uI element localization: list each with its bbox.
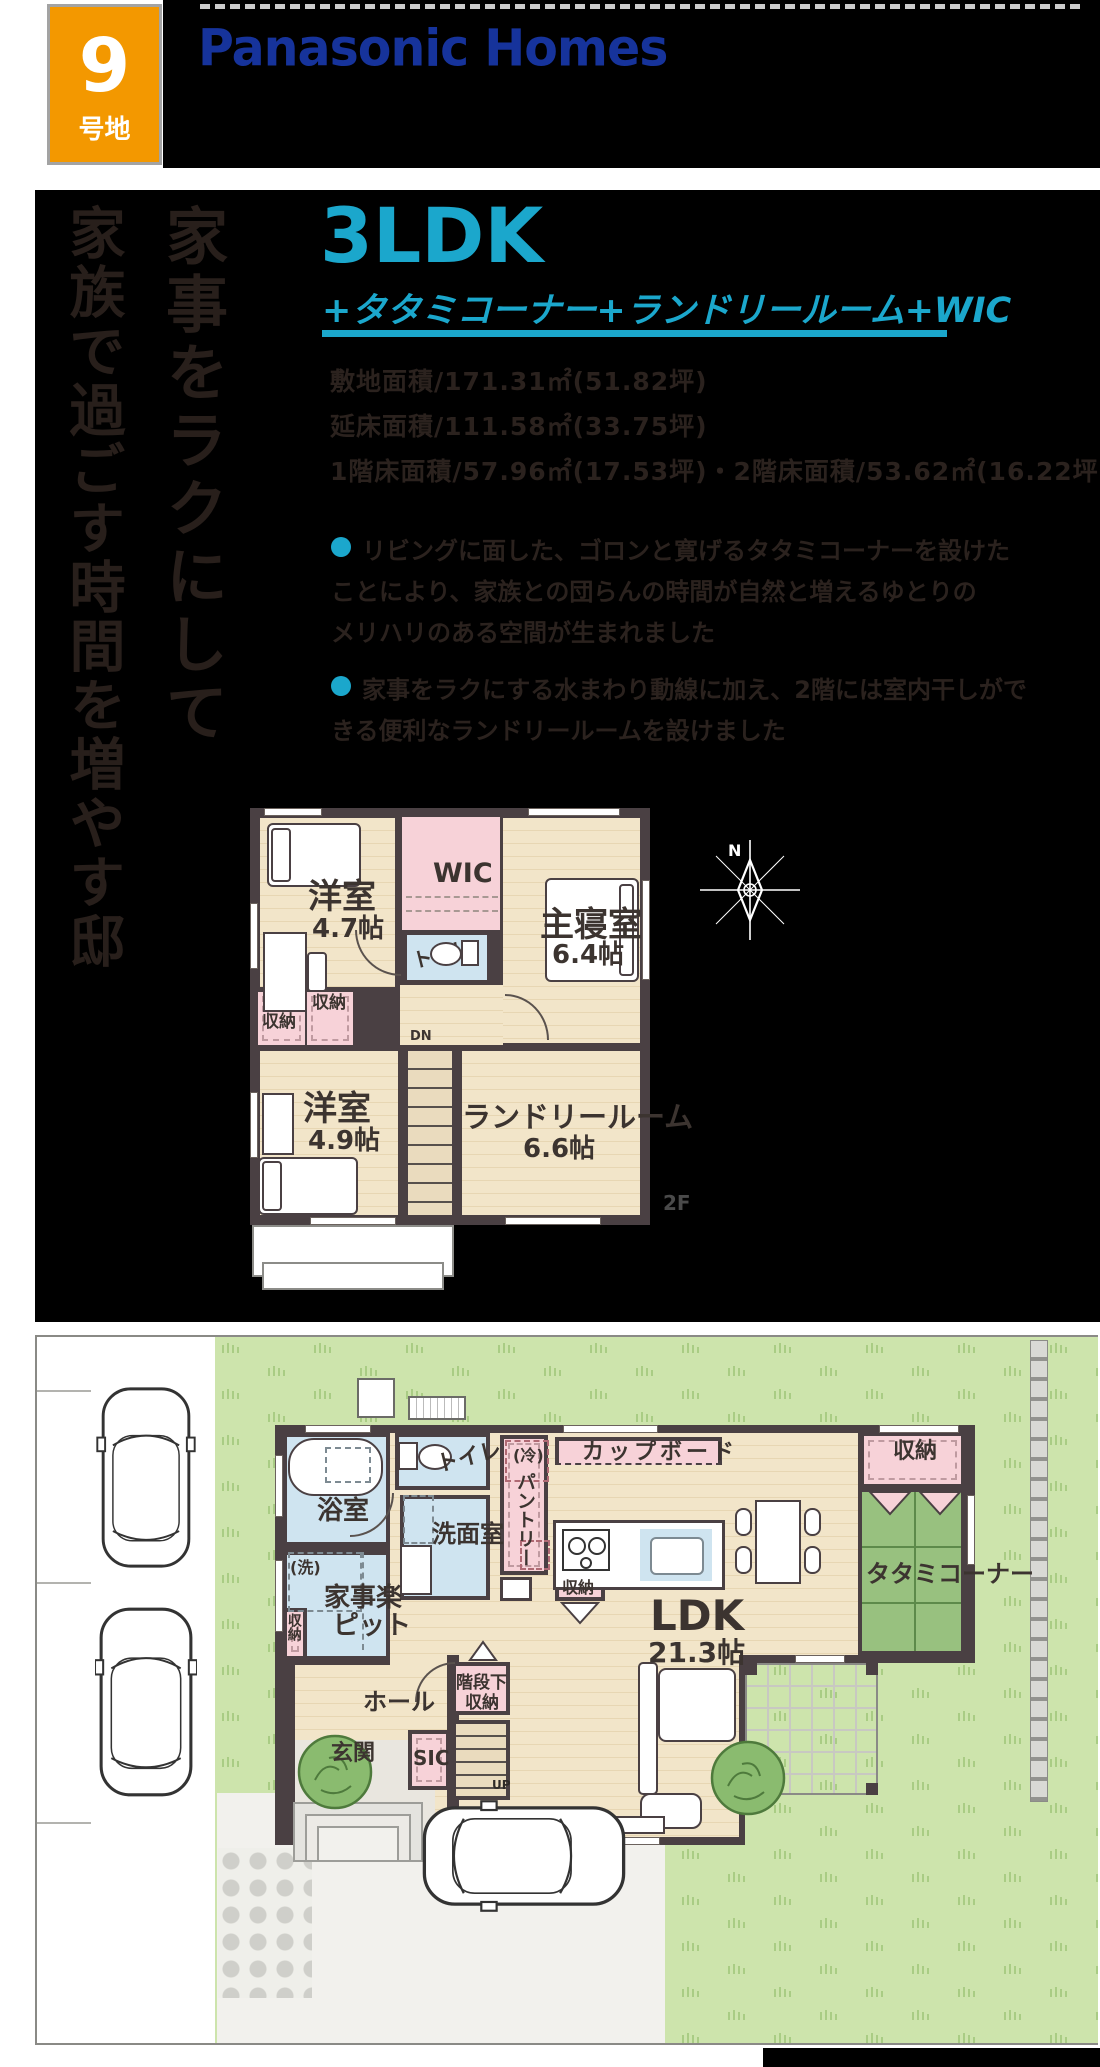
label-1f-storage-topright: 収納 bbox=[893, 1440, 937, 1463]
spec-total-floor-area: 延床面積/111.58㎡(33.75坪) bbox=[330, 407, 708, 443]
terrace-post bbox=[745, 1663, 757, 1675]
porch-step-inner bbox=[317, 1826, 399, 1862]
lot-badge: 9 号地 bbox=[47, 4, 162, 165]
wic-hanger-dash2 bbox=[406, 910, 498, 912]
vanity-unit bbox=[400, 1545, 432, 1595]
title-underline bbox=[322, 330, 947, 337]
lot-number: 9 bbox=[50, 29, 159, 103]
label-1f-bath: 浴室 bbox=[317, 1498, 369, 1525]
label-1f-ldk: LDK bbox=[650, 1594, 744, 1638]
window-2f-top2 bbox=[528, 808, 620, 816]
window-2f-bottom1 bbox=[310, 1217, 396, 1225]
window-2f-right bbox=[642, 880, 650, 980]
label-1f-kaji1: 家事楽 bbox=[324, 1585, 402, 1612]
window-1f-wing-right bbox=[967, 1495, 975, 1565]
label-1f-understairs1: 階段下 bbox=[456, 1675, 507, 1693]
fold-door-triangle bbox=[868, 1490, 912, 1516]
label-1f-washer-mark: (洗) bbox=[290, 1560, 321, 1577]
pillow-2f-western2 bbox=[262, 1161, 282, 1211]
toilet-bowl-2f bbox=[430, 942, 462, 966]
window-1f-top-kitchen bbox=[563, 1425, 658, 1433]
parking-divider bbox=[37, 1390, 91, 1392]
label-1f-genkan: 玄関 bbox=[331, 1742, 375, 1765]
label-1f-washroom: 洗面室 bbox=[432, 1522, 504, 1547]
washer-space bbox=[403, 1495, 434, 1544]
label-2f-wic: WIC bbox=[433, 860, 493, 888]
car-top-view bbox=[95, 1598, 197, 1806]
label-2f-closet-a: 収納 bbox=[262, 1014, 296, 1032]
window-2f-left2 bbox=[250, 1092, 258, 1158]
dining-chair bbox=[735, 1508, 752, 1536]
label-1f-ldk-size: 21.3帖 bbox=[648, 1638, 745, 1667]
label-1f-tatami: タタミコーナー bbox=[866, 1562, 1034, 1587]
perforation-line bbox=[200, 4, 1080, 9]
label-2f-laundry: ランドリールーム bbox=[462, 1102, 693, 1132]
dining-chair bbox=[804, 1508, 821, 1536]
stairs-2f bbox=[408, 1051, 452, 1215]
window-1f-left1 bbox=[275, 1455, 283, 1517]
dining-table bbox=[755, 1500, 801, 1584]
kitchen-sink bbox=[640, 1529, 712, 1581]
window-1f-wing-top bbox=[879, 1425, 959, 1433]
spec-site-area: 敷地面積/171.31㎡(51.82坪) bbox=[330, 362, 708, 398]
sofa-seat bbox=[658, 1668, 736, 1742]
stone-pavement bbox=[218, 1848, 312, 1998]
parking-divider bbox=[37, 1582, 91, 1584]
label-2f-master-size: 6.4帖 bbox=[552, 942, 624, 969]
point1-line3: メリハリのある空間が生まれました bbox=[331, 613, 715, 648]
parking-divider bbox=[37, 1822, 91, 1824]
window-2f-left1 bbox=[250, 903, 258, 969]
terrace-post bbox=[866, 1783, 878, 1795]
spec-floor-areas: 1階床面積/57.96㎡(17.53坪)・2階床面積/53.62㎡(16.22坪… bbox=[330, 452, 1100, 488]
plan-type-title: 3LDK bbox=[320, 198, 543, 274]
water-heater-unit bbox=[357, 1378, 395, 1418]
label-2f-dn: DN bbox=[410, 1030, 432, 1044]
wic-hanger-dash1 bbox=[406, 896, 498, 898]
chair-2f-western1 bbox=[307, 952, 327, 992]
point1-line1: リビングに面した、ゴロンと寛げるタタミコーナーを設けた bbox=[362, 531, 1010, 566]
point2-bullet-icon bbox=[331, 676, 351, 696]
label-2f-floor-tag: 2F bbox=[663, 1193, 691, 1214]
terrace-door-1f bbox=[795, 1655, 845, 1663]
balcony-2f-front bbox=[262, 1262, 444, 1290]
label-1f-hall: ホール bbox=[363, 1690, 435, 1715]
label-1f-sic: SIC bbox=[413, 1748, 450, 1769]
label-2f-closet-b: 収納 bbox=[312, 995, 346, 1013]
tree-icon bbox=[708, 1738, 788, 1818]
compass-icon: N bbox=[698, 838, 802, 942]
window-2f-bottom2 bbox=[505, 1217, 601, 1225]
label-2f-western2-size: 4.9帖 bbox=[308, 1128, 380, 1155]
fold-door-triangle bbox=[468, 1640, 498, 1662]
label-2f-western2: 洋室 bbox=[303, 1092, 371, 1128]
headline-right-column: 家事をラクにして bbox=[146, 204, 236, 804]
plan-subtitle: +タタミコーナー+ランドリールーム+WIC bbox=[322, 282, 1011, 333]
bath-dashed-box bbox=[325, 1447, 371, 1483]
spacer bbox=[452, 1136, 456, 1140]
pillow-2f-western1 bbox=[271, 828, 291, 882]
label-1f-pantry: パントリー bbox=[514, 1472, 534, 1564]
label-1f-storage-mid: 収納 bbox=[562, 1580, 594, 1597]
car-top-view bbox=[95, 1385, 197, 1570]
flyer-page: 9 号地 Panasonic Homes 家事をラクにして 家族で過ごす時間を増… bbox=[0, 0, 1100, 2067]
label-1f-up: UP bbox=[492, 1779, 511, 1792]
lot-suffix: 号地 bbox=[50, 109, 159, 146]
burner-icon bbox=[588, 1537, 606, 1555]
fold-door-triangle bbox=[560, 1601, 600, 1625]
headline-left-column: 家族で過ごす時間を増やす邸 bbox=[52, 204, 133, 1004]
window-2f-top1 bbox=[264, 808, 322, 816]
label-1f-closet-left: 収納 bbox=[286, 1613, 301, 1657]
car-top-view-horizontal bbox=[420, 1798, 628, 1914]
toilet-tank-1f bbox=[398, 1442, 418, 1470]
fold-door-triangle bbox=[918, 1490, 962, 1516]
burner-icon bbox=[580, 1557, 592, 1569]
desk-2f-western1 bbox=[263, 932, 307, 1012]
ac-outdoor-unit bbox=[408, 1396, 466, 1420]
sink-basin bbox=[650, 1537, 704, 1575]
label-2f-master: 主寝室 bbox=[540, 908, 642, 944]
label-1f-understairs2: 収納 bbox=[465, 1695, 499, 1713]
toilet-tank-2f bbox=[461, 940, 479, 966]
label-2f-laundry-size: 6.6帖 bbox=[523, 1136, 595, 1163]
terrace-post bbox=[866, 1663, 878, 1675]
bottom-crop-bar bbox=[763, 2048, 1100, 2067]
compass-n-label: N bbox=[728, 841, 741, 860]
dining-chair bbox=[735, 1546, 752, 1574]
point2-line1: 家事をラクにする水まわり動線に加え、2階には室内干しがで bbox=[362, 670, 1027, 705]
stove-top bbox=[562, 1529, 610, 1571]
label-1f-fridge: (冷) bbox=[513, 1448, 544, 1465]
brand-logo: Panasonic Homes bbox=[198, 19, 667, 78]
window-1f-top-bath bbox=[305, 1425, 371, 1433]
sofa-back bbox=[638, 1662, 658, 1795]
burner-icon bbox=[568, 1537, 586, 1555]
desk-2f-western2 bbox=[262, 1093, 294, 1155]
label-1f-kaji2: ピット bbox=[333, 1613, 411, 1640]
room-1f-kitchen-storage-white bbox=[500, 1577, 532, 1601]
point1-bullet-icon bbox=[331, 537, 351, 557]
point2-line2: きる便利なランドリールームを設けました bbox=[331, 711, 786, 746]
dining-chair bbox=[804, 1546, 821, 1574]
label-2f-western1-size: 4.7帖 bbox=[312, 916, 384, 943]
label-1f-cupboard: カップボード bbox=[582, 1441, 738, 1464]
point1-line2: ことにより、家族との団らんの時間が自然と増えるゆとりの bbox=[331, 572, 977, 607]
label-2f-western1: 洋室 bbox=[308, 880, 376, 916]
window-1f-left2 bbox=[275, 1560, 283, 1632]
